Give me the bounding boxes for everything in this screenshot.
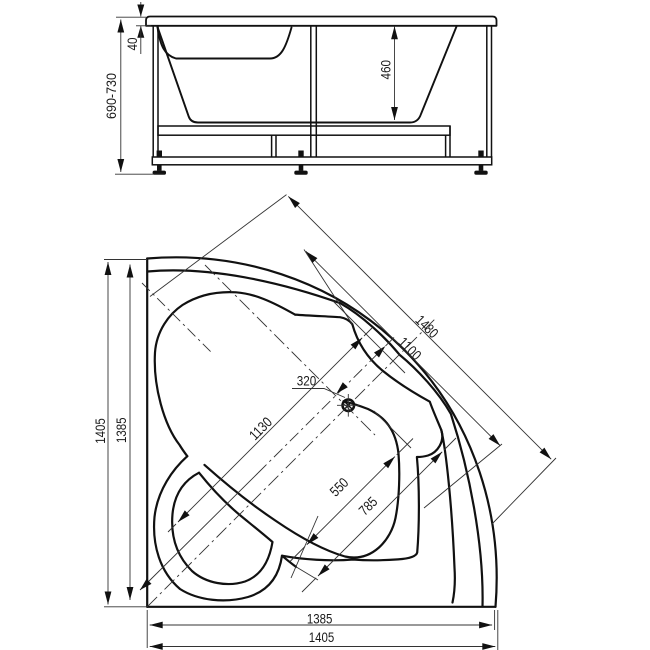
svg-text:1385: 1385: [114, 417, 130, 443]
svg-text:1405: 1405: [309, 630, 335, 646]
svg-text:1100: 1100: [395, 334, 424, 363]
svg-text:1385: 1385: [307, 611, 333, 627]
svg-text:320: 320: [297, 374, 317, 390]
svg-text:40: 40: [125, 37, 141, 50]
svg-text:785: 785: [356, 494, 381, 519]
svg-text:1405: 1405: [93, 418, 109, 444]
svg-text:550: 550: [327, 475, 352, 500]
svg-text:460: 460: [379, 60, 395, 80]
svg-text:690-730: 690-730: [104, 73, 120, 119]
svg-text:1130: 1130: [246, 414, 275, 443]
